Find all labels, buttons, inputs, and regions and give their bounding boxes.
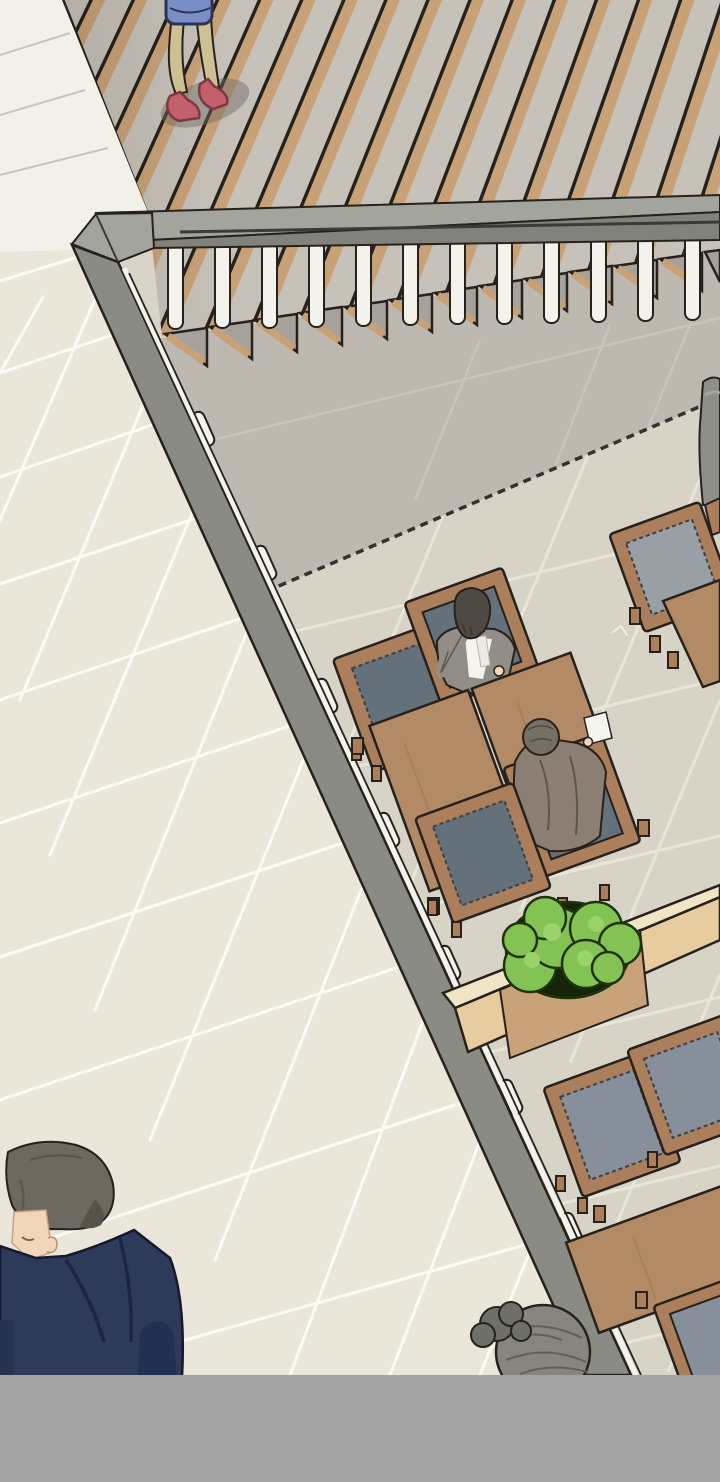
- webtoon-panel: High-angle isometric view of a cafe terr…: [0, 0, 720, 1482]
- ear: [47, 1237, 57, 1252]
- jacket-man-hand: [584, 738, 593, 747]
- scene-canvas: High-angle isometric view of a cafe terr…: [0, 0, 720, 1482]
- bottom-letterbox-bar: gray panel bar: [0, 1375, 720, 1482]
- suit-man-hair: [455, 588, 491, 638]
- hand-on-table: [494, 666, 504, 676]
- standing-figure-partial: partial standing figure at right edge: [699, 378, 720, 505]
- standing-figure-body: [699, 378, 720, 505]
- navy-arm-sliver: [0, 1320, 13, 1377]
- jacket-man-head: [523, 719, 559, 755]
- jacket-fold-shade: [138, 1321, 177, 1377]
- letterbox-rect: [0, 1375, 720, 1482]
